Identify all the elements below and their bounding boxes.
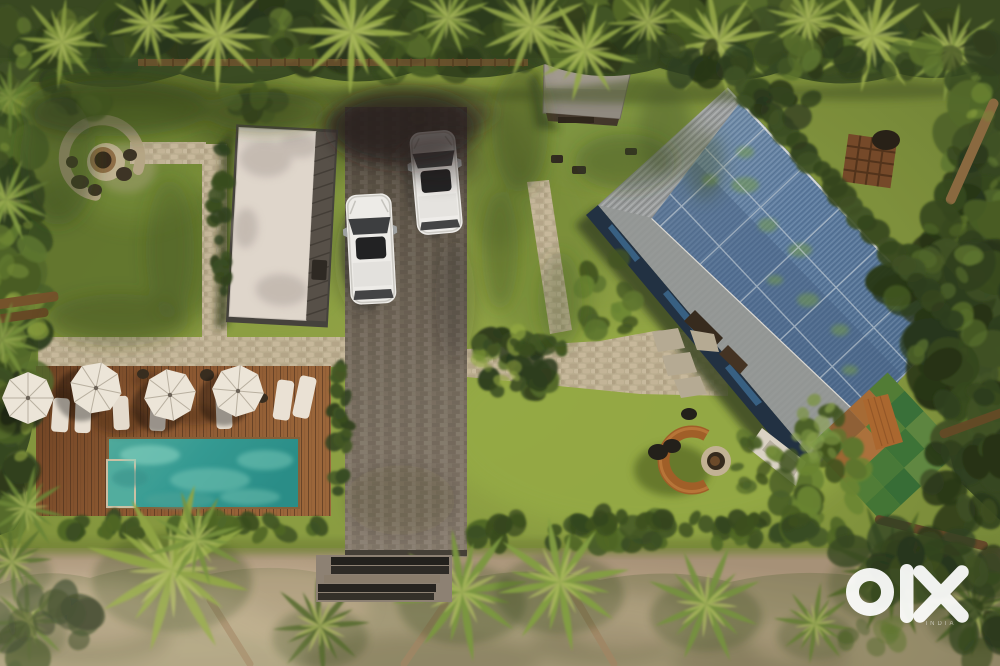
svg-text:INDIA: INDIA — [925, 621, 956, 627]
